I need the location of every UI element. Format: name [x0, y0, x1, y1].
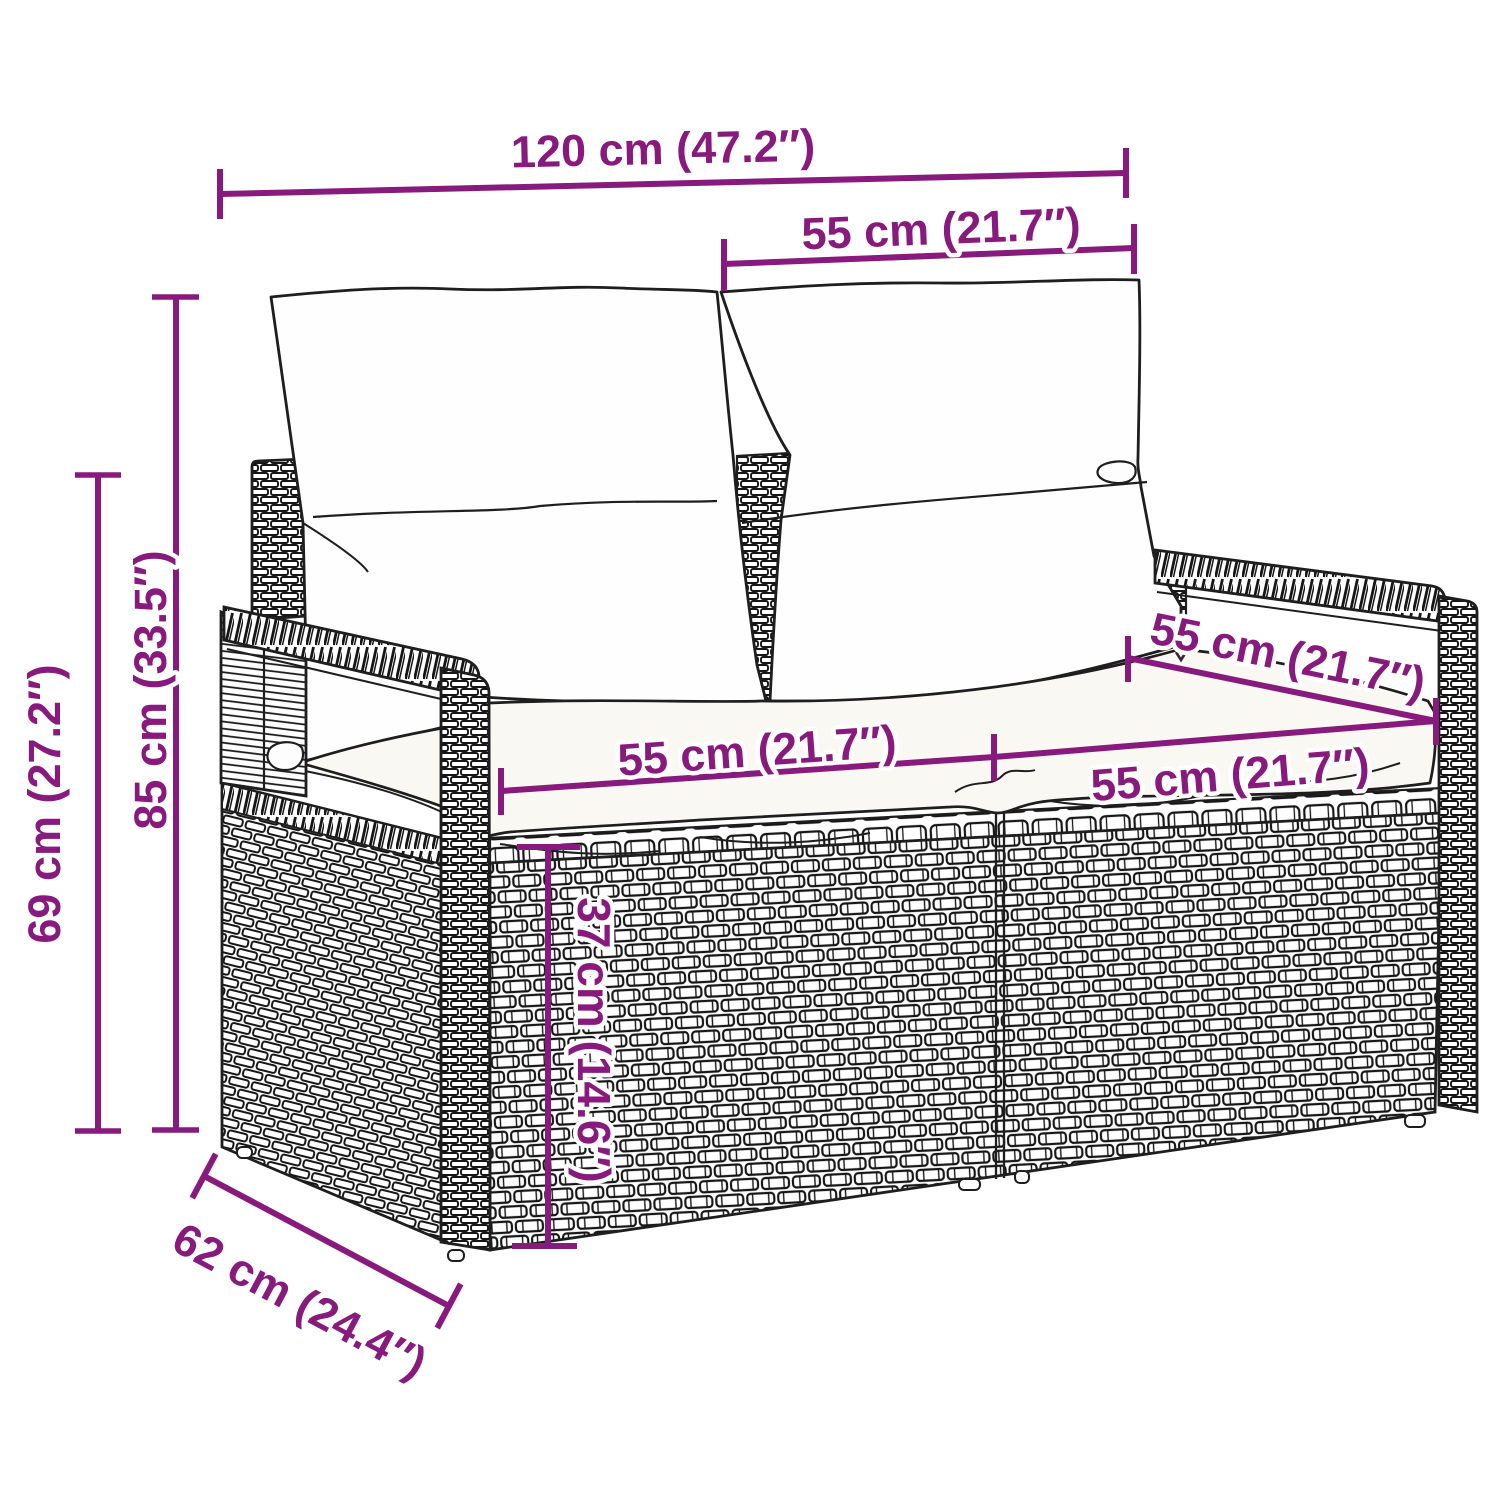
svg-text:85 cm (33.5″): 85 cm (33.5″) — [125, 550, 176, 829]
svg-text:55 cm (21.7″): 55 cm (21.7″) — [801, 198, 1082, 260]
svg-text:69 cm (27.2″): 69 cm (27.2″) — [19, 664, 70, 943]
svg-text:120 cm (47.2″): 120 cm (47.2″) — [510, 120, 815, 178]
svg-text:37 cm (14.6″): 37 cm (14.6″) — [568, 897, 620, 1182]
